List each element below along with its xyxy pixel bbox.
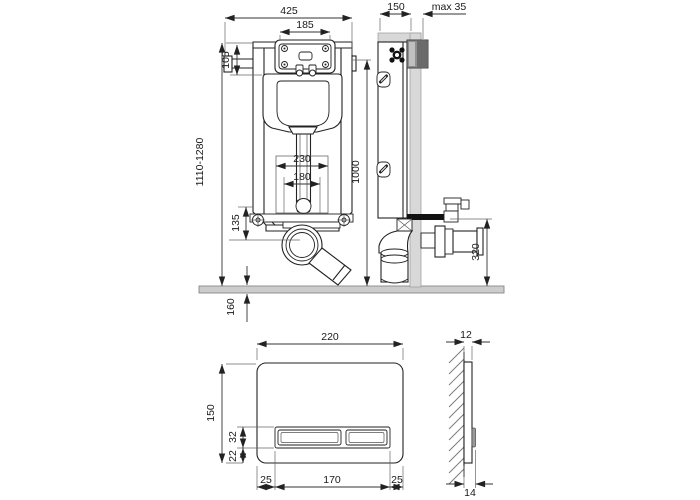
- drain-elbow: [282, 225, 351, 285]
- dim-label-14: 14: [464, 487, 476, 499]
- dim-label-22: 22: [227, 450, 239, 462]
- button-bump: [472, 428, 476, 447]
- flush-plate-front-view: [257, 363, 403, 463]
- flush-button-small: [346, 430, 387, 445]
- dim-label-1110-1280: 1110-1280: [194, 138, 206, 187]
- dim-label-25-left: 25: [260, 474, 272, 486]
- dim-label-plate-150: 150: [205, 404, 217, 422]
- plate-profile: [464, 362, 472, 463]
- dim-label-230: 230: [293, 153, 311, 165]
- dim-plate-width: 220: [257, 331, 403, 360]
- frame-front-view: [224, 40, 356, 285]
- flush-plate-side-view: [449, 348, 476, 484]
- dim-label-12: 12: [460, 329, 472, 341]
- tool-icon-lower: [377, 162, 390, 177]
- dim-plate-thickness: 12: [446, 329, 490, 360]
- dim-label-180: 180: [293, 171, 311, 183]
- flush-button-large: [278, 430, 341, 445]
- dim-frame-height: 1000: [350, 60, 371, 286]
- dim-button-bottom-offset: 22: [227, 448, 243, 463]
- dim-label-150: 150: [387, 1, 405, 13]
- trap-elbow: [379, 219, 412, 283]
- technical-drawing-page: 425 185 105 1110-1280 1000: [0, 0, 700, 500]
- inlet-pipe: [407, 214, 445, 220]
- tool-icon-upper: [377, 72, 390, 87]
- dim-opening-width: 185: [280, 19, 330, 41]
- dim-below-floor: 160: [225, 266, 247, 322]
- dim-label-160: 160: [225, 298, 237, 316]
- flush-plate-block: [407, 40, 428, 68]
- access-box: [275, 40, 335, 76]
- wall-hatching: [449, 348, 464, 484]
- dim-label-135: 135: [230, 214, 242, 232]
- inlet-connector: [444, 198, 469, 222]
- dim-label-25-right: 25: [391, 474, 403, 486]
- cistern-tank: [263, 74, 342, 132]
- floor-line: [199, 286, 504, 293]
- dim-frame-depth: 150: [380, 1, 411, 31]
- dim-label-220: 220: [321, 331, 339, 343]
- dim-label-max35: max 35: [432, 1, 467, 13]
- technical-drawing-canvas: 425 185 105 1110-1280 1000: [0, 0, 700, 500]
- frame-side-view: [377, 33, 483, 287]
- dim-height-range: 1110-1280: [194, 43, 253, 286]
- dim-label-185: 185: [296, 19, 314, 31]
- dim-plate-protrusion: max 35: [423, 1, 466, 39]
- dim-label-425: 425: [280, 5, 298, 17]
- dim-label-32: 32: [227, 431, 239, 443]
- dim-label-1000: 1000: [350, 160, 362, 184]
- dim-label-170: 170: [323, 474, 341, 486]
- dim-label-320: 320: [470, 243, 482, 261]
